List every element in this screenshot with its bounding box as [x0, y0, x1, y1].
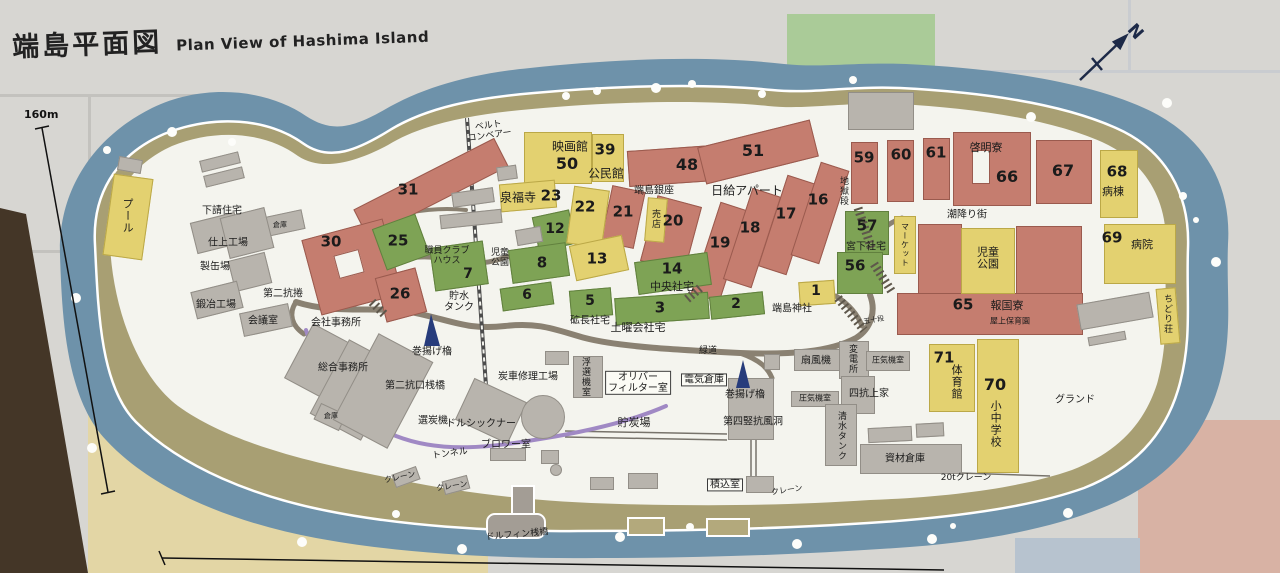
- map-label: 扇風機: [801, 355, 831, 366]
- hashima-map-signboard: 3130262571286532141323222120503948511918…: [0, 0, 1280, 573]
- map-label: 端島銀座: [634, 185, 674, 196]
- map-label: 巻揚げ櫓: [725, 389, 765, 400]
- map-building-number: 31: [398, 182, 419, 199]
- map-building-number: 61: [926, 145, 947, 162]
- map-building-number: 70: [984, 376, 1006, 394]
- map-label: 下請住宅: [202, 205, 242, 216]
- map-label: 宮下社宅: [846, 241, 886, 252]
- map-label: 炭車修理工場: [498, 371, 558, 382]
- map-building-number: 7: [463, 267, 473, 283]
- map-label: 日給アパート: [711, 184, 783, 197]
- north-arrow: [1080, 36, 1126, 80]
- map-building-number: 23: [541, 188, 562, 205]
- map-building-number: 50: [556, 155, 578, 173]
- map-title-english: Plan View of Hashima Island: [176, 28, 430, 55]
- map-label: ドルシックナー: [446, 418, 516, 429]
- scale-line-vertical: [35, 126, 115, 494]
- map-building-number: 30: [321, 234, 342, 251]
- map-label: 児童 公園: [491, 248, 509, 268]
- map-building-number: 20: [663, 213, 684, 230]
- map-building-number: 16: [808, 192, 829, 209]
- map-label: 映画館: [552, 140, 588, 153]
- map-title-japanese: 端島平面図: [11, 20, 162, 64]
- map-label: 売店: [650, 209, 660, 229]
- map-label: 四抗上家: [849, 388, 889, 399]
- map-label: グランド: [1055, 394, 1095, 405]
- map-building-number: 8: [537, 255, 547, 272]
- map-label: 報国寮: [991, 300, 1024, 312]
- map-label: 会社事務所: [311, 317, 361, 328]
- map-building-number: 59: [854, 150, 875, 167]
- map-building-number: 56: [845, 258, 866, 275]
- map-building-number: 57: [857, 218, 878, 235]
- map-label: 巻揚げ櫓: [412, 346, 452, 357]
- map-building-number: 69: [1102, 230, 1123, 247]
- map-building-number: 19: [710, 235, 731, 252]
- map-label: 端島神社: [772, 303, 812, 314]
- map-building-number: 13: [587, 251, 608, 268]
- scale-line-bottom: [159, 551, 944, 570]
- map-label: 仕上工場: [208, 237, 248, 248]
- map-building-number: 3: [655, 300, 665, 317]
- map-label: 貯炭場: [618, 417, 651, 429]
- map-building-number: 18: [740, 220, 761, 237]
- map-label: 小中学校: [989, 400, 1001, 448]
- map-label: 選炭機: [418, 415, 448, 426]
- map-label: 倉庫: [324, 413, 338, 421]
- map-building-number: 51: [742, 142, 764, 160]
- map-label: 第二抗口桟橋: [385, 380, 445, 391]
- map-label: 倉庫: [273, 222, 287, 230]
- map-label: 電気倉庫: [681, 373, 727, 386]
- map-building-number: 17: [776, 206, 797, 223]
- map-label: 総合事務所: [318, 362, 368, 373]
- map-building-number: 68: [1107, 164, 1128, 181]
- map-label: 変電所: [847, 344, 857, 374]
- map-building-number: 66: [996, 168, 1018, 186]
- map-label: 会議室: [248, 315, 278, 326]
- map-overlay-layer: [0, 0, 1280, 573]
- map-building-number: 48: [676, 156, 698, 174]
- map-label: 啓明寮: [970, 142, 1003, 154]
- map-label: 体育館: [950, 364, 962, 400]
- map-label: 清水タンク: [836, 411, 846, 461]
- map-building-number: 65: [953, 297, 974, 314]
- map-label: 圧気機室: [799, 395, 831, 404]
- map-label: 資材倉庫: [885, 453, 925, 464]
- map-label: ブロワー室: [481, 439, 531, 450]
- map-label: 児童 公園: [977, 247, 999, 272]
- map-label: 積込室: [707, 478, 743, 491]
- map-building-number: 6: [522, 288, 532, 304]
- map-label: 鍛冶工場: [196, 299, 236, 310]
- map-label: 職員クラブ ハウス: [424, 246, 469, 266]
- map-building-number: 25: [388, 233, 409, 250]
- map-label: オリバー フィルター室: [605, 371, 671, 395]
- map-label: 病院: [1131, 239, 1153, 251]
- map-building-number: 60: [891, 147, 912, 164]
- map-label: 地獄段: [838, 176, 848, 206]
- map-building-number: 22: [575, 199, 596, 216]
- map-label: 浮選機室: [580, 357, 590, 397]
- map-label: 砿長社宅: [570, 315, 610, 326]
- map-building-number: 2: [731, 297, 741, 313]
- map-label: 土曜会社宅: [611, 322, 666, 334]
- map-building-number: 39: [595, 142, 616, 159]
- map-label: 泉福寺: [500, 191, 536, 204]
- map-label: 圧気機室: [872, 357, 904, 366]
- map-label: 屋上保育園: [990, 318, 1030, 327]
- map-building-number: 26: [390, 286, 411, 303]
- map-label: 公民館: [588, 167, 624, 180]
- map-label: 緑道: [699, 346, 717, 356]
- map-label: 貯水 タンク: [444, 291, 474, 313]
- map-building-number: 1: [811, 284, 821, 300]
- map-label: 製缶場: [200, 261, 230, 272]
- map-building-number: 14: [662, 261, 683, 278]
- map-label: 第二抗捲: [263, 288, 303, 299]
- map-building-number: 5: [585, 294, 595, 310]
- map-building-number: 12: [545, 222, 564, 238]
- map-label: ちどり荘: [1162, 294, 1172, 334]
- map-building-number: 21: [613, 204, 634, 221]
- map-building-number: 67: [1052, 162, 1074, 180]
- map-label: 20tクレーン: [941, 473, 992, 483]
- map-label: 病棟: [1102, 186, 1124, 198]
- scale-label-160m: 160m: [24, 108, 58, 121]
- map-label: 潮降り街: [947, 209, 987, 220]
- map-label: プール: [121, 198, 133, 234]
- map-label: マーケット: [900, 223, 909, 268]
- map-label: 第四竪抗風洞: [723, 416, 783, 427]
- map-label: 中央社宅: [650, 281, 694, 293]
